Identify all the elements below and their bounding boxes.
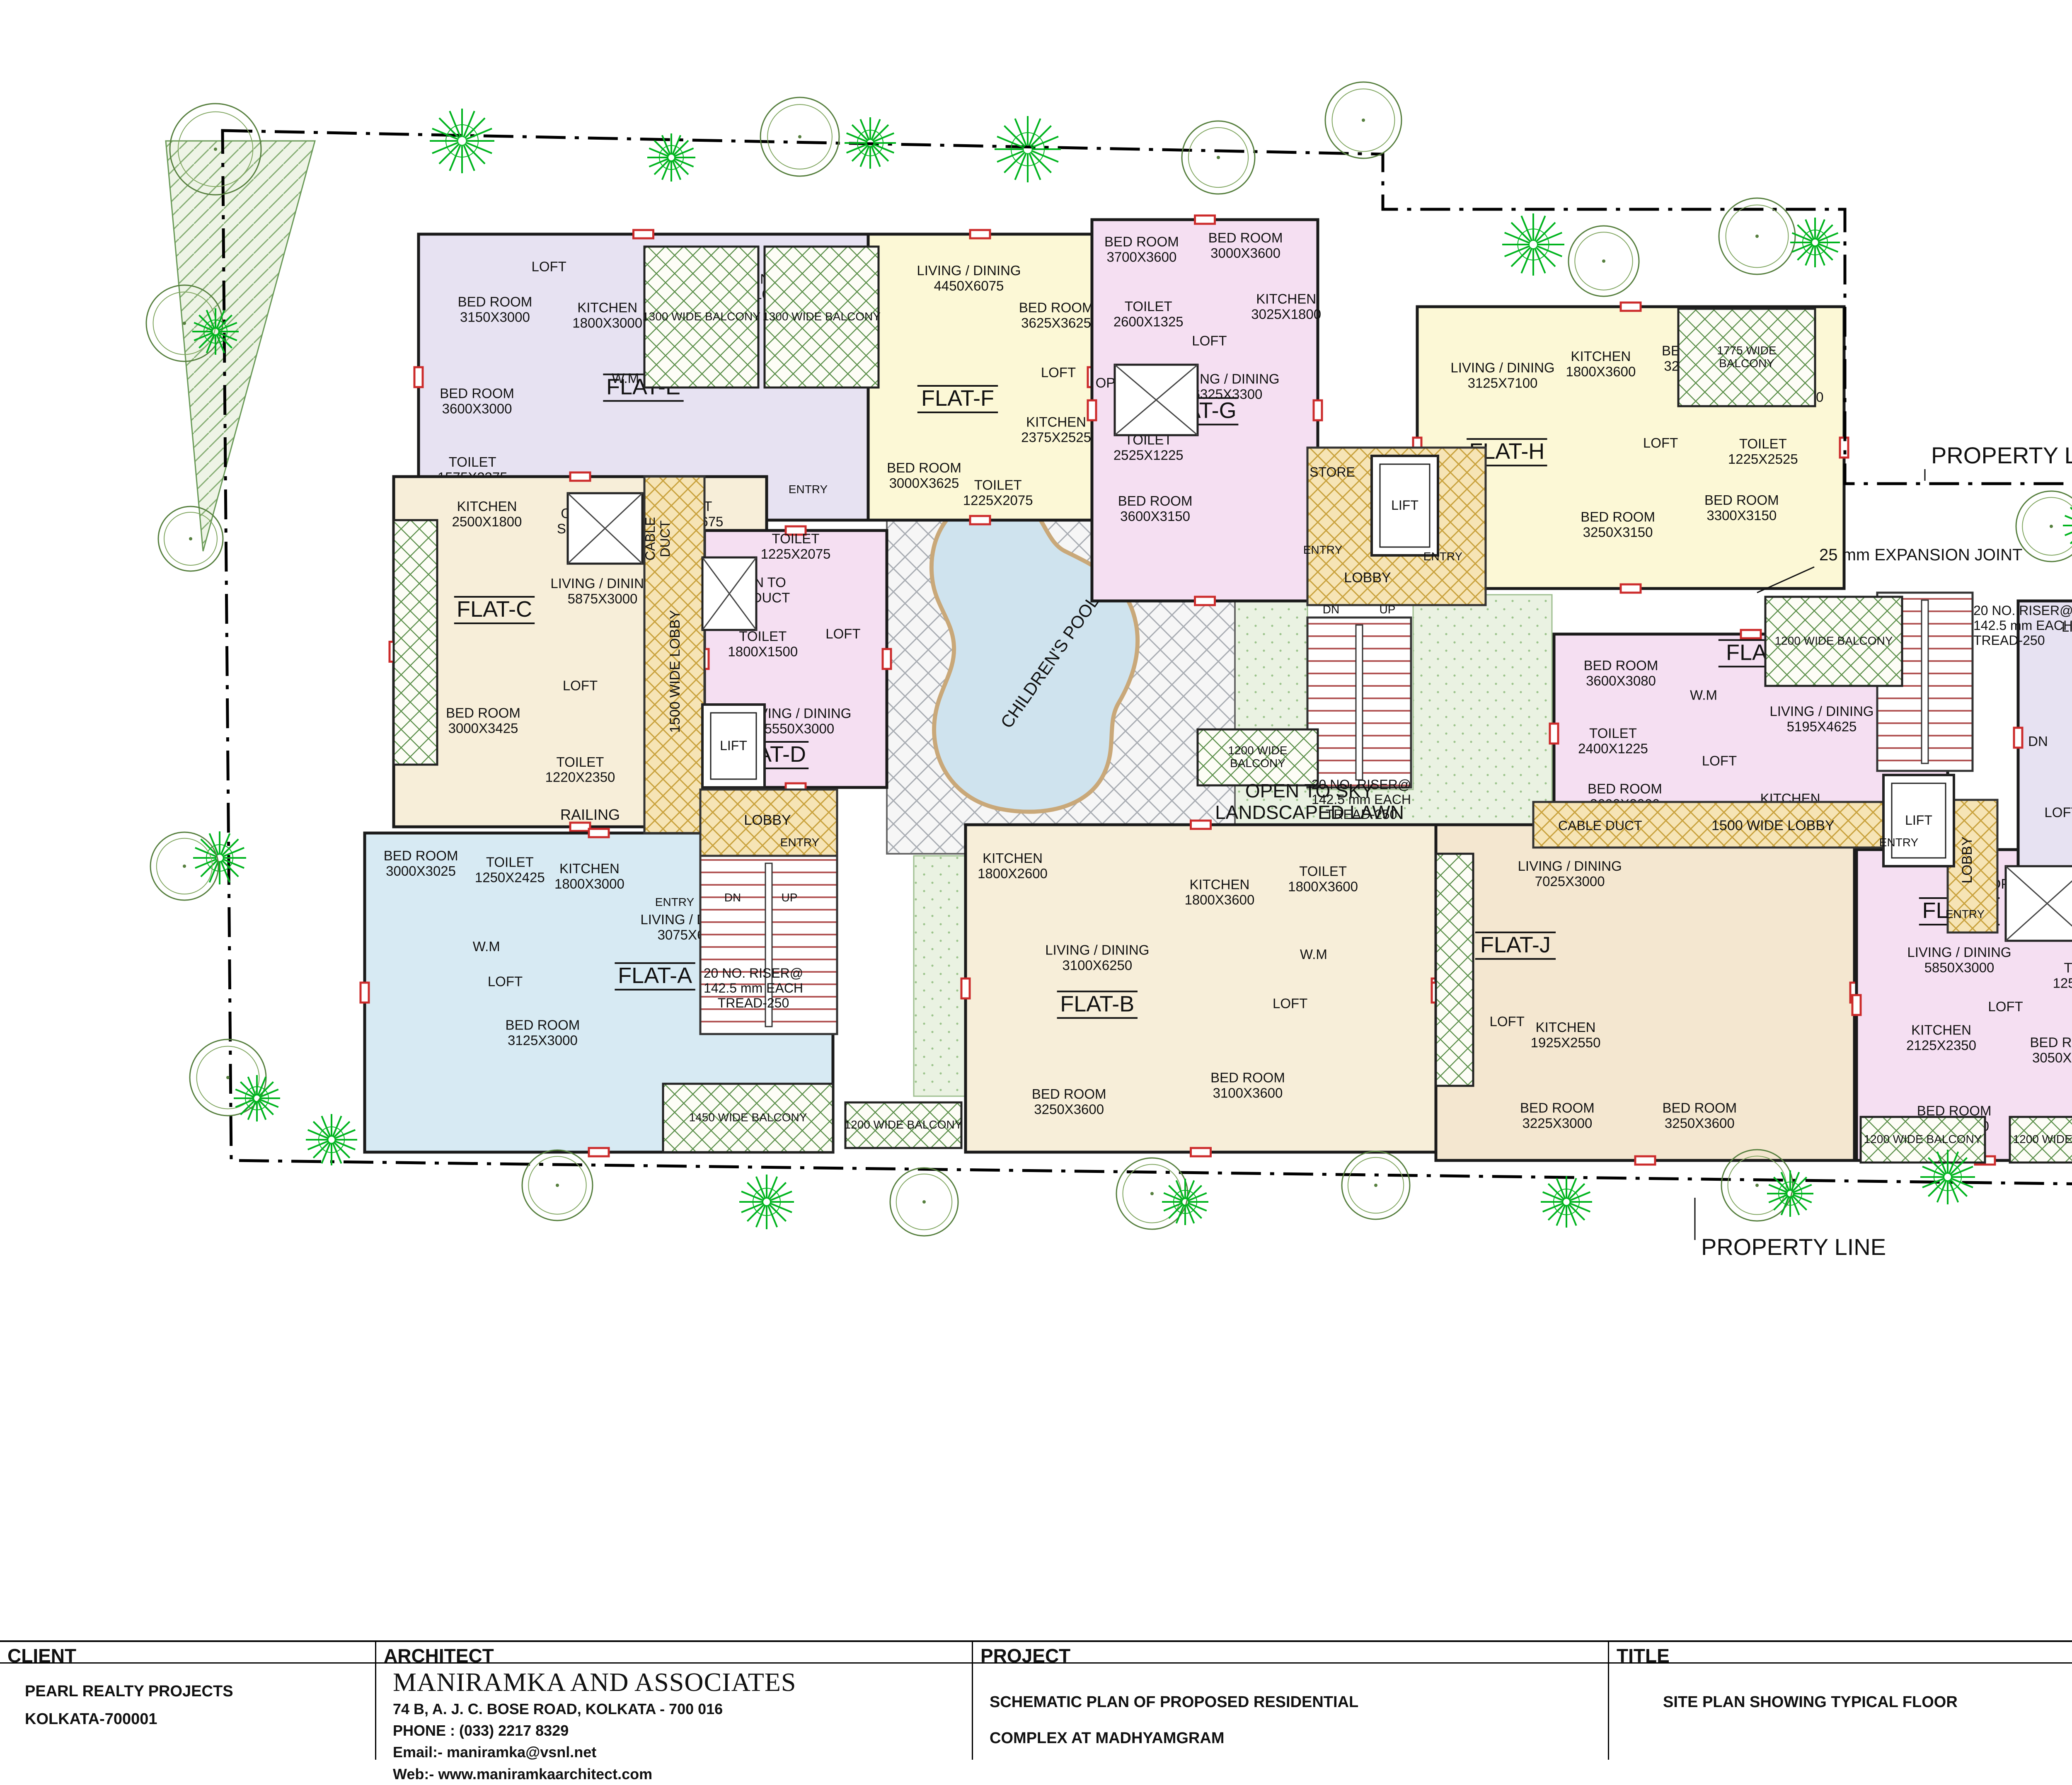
window-marker: [1195, 216, 1215, 224]
annotation: RAILING: [560, 806, 620, 823]
tree-circle: [158, 506, 223, 571]
annotation: LOBBY: [1344, 570, 1391, 586]
room-label: BED ROOM3000X3025: [384, 848, 458, 879]
balcony-label: 1200 WIDEBALCONY: [1228, 744, 1287, 770]
flat-j: LIVING / DINING7025X3000BALCONYLOFTKITCH…: [1432, 821, 1859, 1165]
architect-line: PHONE : (033) 2217 8329: [393, 1720, 972, 1741]
project-line: COMPLEX AT MADHYAMGRAM: [990, 1720, 1608, 1756]
room-label: W.M: [473, 939, 500, 954]
lift-label: LIFT: [720, 738, 747, 753]
room-label: DN: [2028, 734, 2048, 749]
window-marker: [361, 983, 369, 1003]
balcony-label: 1450 WIDE BALCONY: [689, 1111, 807, 1124]
title-block: CLIENT PEARL REALTY PROJECTSKOLKATA-7000…: [0, 1640, 2072, 1760]
tree-circle: [760, 97, 839, 176]
annotation: PROPERTY LINE: [1701, 1234, 1886, 1260]
tree-burst: [1790, 218, 1840, 267]
project-line: SCHEMATIC PLAN OF PROPOSED RESIDENTIAL: [990, 1684, 1608, 1720]
annotation: DN: [1323, 603, 1339, 616]
window-marker: [1635, 1156, 1655, 1165]
client-line: KOLKATA-700001: [25, 1705, 375, 1733]
room-label: BED ROOM3100X3600: [1210, 1070, 1285, 1100]
room-label: W.M: [1300, 947, 1327, 962]
room-label: BED ROOM3250X3600: [1032, 1086, 1106, 1117]
title-block-title: TITLE SITE PLAN SHOWING TYPICAL FLOOR: [1608, 1642, 2072, 1760]
window-marker: [1852, 995, 1861, 1015]
window-marker: [1195, 597, 1215, 605]
architect-line: Email:- maniramka@vsnl.net: [393, 1741, 972, 1763]
project-label: PROJECT: [973, 1642, 1608, 1664]
flat-b-label: FLAT-B: [1060, 991, 1134, 1016]
window-marker: [589, 829, 609, 837]
window-marker: [634, 230, 654, 238]
architect-line: Web:- www.maniramkaarchitect.com: [393, 1763, 972, 1785]
title-block-project: PROJECT SCHEMATIC PLAN OF PROPOSED RESID…: [972, 1642, 1608, 1760]
window-marker: [1621, 584, 1641, 593]
annotation: STORE: [1310, 465, 1355, 480]
annotation: ENTRY: [780, 836, 820, 849]
annotation: ENTRY: [655, 896, 695, 908]
balcony-label: 1200 WIDE BALCONY: [1864, 1133, 1982, 1146]
annotation: LOBBY: [744, 812, 791, 828]
room-label: BED ROOM3125X3000: [506, 1017, 580, 1048]
drawing-sheet: { "sheet": { "area_table": { "title": "A…: [0, 0, 2072, 1758]
tree-burst: [1767, 1170, 1813, 1217]
title-block-client: CLIENT PEARL REALTY PROJECTSKOLKATA-7000…: [0, 1642, 375, 1760]
annotation: DN: [724, 891, 741, 904]
room-label: KITCHEN2375X2525: [1021, 414, 1091, 445]
tree-circle: [1182, 121, 1255, 194]
title-label: TITLE: [1609, 1642, 2072, 1664]
room-label: LOFT: [531, 259, 566, 274]
room-label: KITCHEN1925X2550: [1531, 1020, 1601, 1050]
tree-circle: [522, 1150, 593, 1221]
project-info: SCHEMATIC PLAN OF PROPOSED RESIDENTIALCO…: [973, 1664, 1608, 1757]
room-label: BED ROOM3600X3080: [1584, 658, 1658, 688]
tree-burst: [995, 116, 1061, 182]
balcony-label: 1200 WIDE BALCONY: [845, 1118, 963, 1131]
annotation: 1500 WIDE LOBBY: [1711, 818, 1835, 833]
annotation: ENTRY: [1423, 550, 1463, 563]
plan-layers: LOFTBED ROOM3150X3000KITCHEN1800X3000LIV…: [146, 62, 2072, 1305]
window-marker: [1191, 821, 1211, 829]
tree-circle: [890, 1168, 958, 1236]
room-label: LOFT: [488, 974, 523, 989]
room-label: BED ROOM3150X3000: [458, 294, 533, 325]
title-block-architect: ARCHITECT MANIRAMKA AND ASSOCIATES 74 B,…: [375, 1642, 972, 1760]
room-label: BED ROOM3300X3150: [1704, 492, 1779, 523]
architect-line: 74 B, A. J. C. BOSE ROAD, KOLKATA - 700 …: [393, 1698, 972, 1720]
annotation: 1500 WIDE LOBBY: [667, 610, 683, 733]
window-marker: [570, 823, 590, 831]
room-label: BED ROOM3000X3425: [446, 705, 520, 736]
architect-label: ARCHITECT: [376, 1642, 972, 1664]
room-label: BED ROOM3600X3000: [440, 386, 514, 417]
window-marker: [589, 1148, 609, 1156]
tree-burst: [1162, 1179, 1208, 1225]
window-marker: [883, 649, 891, 669]
room-label: LOFT: [2044, 804, 2072, 820]
window-marker: [1550, 724, 1558, 744]
client-label: CLIENT: [0, 1642, 375, 1664]
room-label: KITCHEN1800X3600: [1566, 349, 1636, 379]
window-marker: [970, 230, 990, 238]
window-marker: [970, 516, 990, 524]
room-label: BED ROOM3000X3600: [1208, 230, 1283, 261]
client-line: PEARL REALTY PROJECTS: [25, 1678, 375, 1705]
lift-label: LIFT: [1391, 498, 1418, 513]
tree-burst: [739, 1175, 794, 1229]
tree-burst: [306, 1114, 357, 1165]
annotation: 20 NO. RISER@142.5 mm EACHTREAD-250: [704, 966, 804, 1010]
window-marker: [961, 978, 970, 998]
window-marker: [1088, 400, 1096, 420]
title-line: SITE PLAN SHOWING TYPICAL FLOOR: [1663, 1688, 2072, 1716]
annotation: UP: [1380, 603, 1396, 616]
tree-circle: [1569, 226, 1639, 296]
room-label: LOFT: [1273, 995, 1307, 1011]
annotation: ENTRY: [1946, 908, 1985, 920]
room-label: BED ROOM3250X3150: [1581, 509, 1655, 540]
annotation: ENTRY: [1879, 836, 1919, 849]
annotation: 20 NO. RISER@142.5 mm EACHTREAD-250: [1312, 777, 1411, 822]
flat-j-outline: [1436, 825, 1854, 1160]
room-label: BED ROOM3000X3625: [887, 460, 961, 491]
window-marker: [1741, 630, 1761, 638]
architect-info: MANIRAMKA AND ASSOCIATES 74 B, A. J. C. …: [376, 1664, 972, 1785]
site-plan-canvas: LOFTBED ROOM3150X3000KITCHEN1800X3000LIV…: [0, 0, 2072, 1758]
tree-burst: [430, 109, 494, 173]
balcony-label: 1300 WIDE BALCONY: [762, 310, 881, 323]
tree-burst: [647, 133, 695, 182]
balcony-label: 1775 WIDEBALCONY: [1717, 344, 1776, 370]
room-label: LOFT: [1041, 365, 1076, 380]
balcony-label: 1300 WIDE BALCONY: [642, 310, 760, 323]
window-marker: [570, 472, 590, 481]
flat-a-label: FLAT-A: [618, 963, 692, 988]
flat-b: KITCHEN1800X2600KITCHEN1800X3600TOILET18…: [961, 821, 1440, 1156]
tree-circle: [1342, 1151, 1410, 1219]
room-label: BED ROOM3050X3400: [2030, 1035, 2072, 1066]
annotation: 25 mm EXPANSION JOINT: [1819, 546, 2022, 564]
room-label: LOFT: [825, 626, 860, 641]
room-label: BED ROOM3600X3150: [1118, 493, 1193, 524]
room-label: LOFT: [1490, 1014, 1525, 1029]
balcony: [394, 520, 437, 765]
tree-burst: [1541, 1176, 1592, 1228]
annotation: CABLE DUCT: [1558, 818, 1642, 833]
annotation: ENTRY: [1303, 543, 1343, 556]
tree-burst: [1502, 213, 1564, 276]
tree-burst: [234, 1075, 280, 1121]
room-label: W.M: [1690, 687, 1717, 702]
room-label: KITCHEN1800X2600: [978, 850, 1048, 881]
tree-circle: [150, 832, 218, 900]
room-label: KITCHEN1800X3000: [572, 300, 642, 331]
room-label: BED ROOM3250X3600: [1662, 1100, 1737, 1131]
window-marker: [2014, 728, 2022, 748]
window-marker: [414, 367, 423, 387]
room-label: BED ROOM3625X3625: [1019, 300, 1094, 331]
room-label: KITCHEN2125X2350: [1906, 1022, 1976, 1053]
drawing-title: SITE PLAN SHOWING TYPICAL FLOOR: [1609, 1664, 2072, 1716]
room-label: LOFT: [1643, 435, 1678, 450]
balcony: [1436, 854, 1473, 1086]
client-info: PEARL REALTY PROJECTSKOLKATA-700001: [0, 1664, 375, 1733]
room-label: KITCHEN1800X3000: [554, 861, 625, 891]
room-label: LOFT: [1702, 753, 1737, 768]
annotation: UP: [782, 891, 798, 904]
room-label: LOFT: [563, 678, 598, 693]
room-label: KITCHEN2500X1800: [452, 499, 522, 529]
window-marker: [1314, 400, 1322, 420]
room-label: KITCHEN3025X1800: [1251, 291, 1321, 322]
architect-name: MANIRAMKA AND ASSOCIATES: [393, 1667, 972, 1698]
tree-burst: [193, 831, 246, 884]
annotation: CABLEDUCT: [643, 517, 673, 561]
window-marker: [1621, 303, 1641, 311]
flat-c-label: FLAT-C: [457, 597, 532, 622]
balcony-label: 1200 WIDE BALCONY: [2013, 1133, 2072, 1146]
flat-f-label: FLAT-F: [921, 386, 994, 411]
stair-rail: [1922, 600, 1928, 763]
lift-label: LIFT: [1905, 813, 1932, 828]
annotation: PROPERTY LINE: [1931, 442, 2072, 468]
tree-burst: [2063, 500, 2072, 551]
annotation: LOBBY: [1959, 836, 1975, 883]
room-label: LOFT: [1988, 999, 2023, 1014]
open-to-sky-duct: [2006, 866, 2072, 941]
window-marker: [1191, 1148, 1211, 1156]
green-area: [166, 141, 315, 551]
tree-circle: [1325, 82, 1402, 158]
tree-burst: [1920, 1150, 1975, 1204]
room-label: BED ROOM3700X3600: [1104, 234, 1179, 264]
room-label: BED ROOM3225X3000: [1520, 1100, 1595, 1131]
room-label: LOFT: [1192, 333, 1227, 349]
room-label: KITCHEN1800X3600: [1184, 877, 1254, 907]
annotation: ENTRY: [789, 483, 828, 496]
stair-rail: [1356, 625, 1363, 780]
flat-f: LIVING / DINING4450X6075BED ROOM3625X362…: [864, 230, 1096, 524]
balcony-label: 1200 WIDE BALCONY: [1775, 635, 1893, 647]
flat-j-label: FLAT-J: [1480, 932, 1551, 957]
